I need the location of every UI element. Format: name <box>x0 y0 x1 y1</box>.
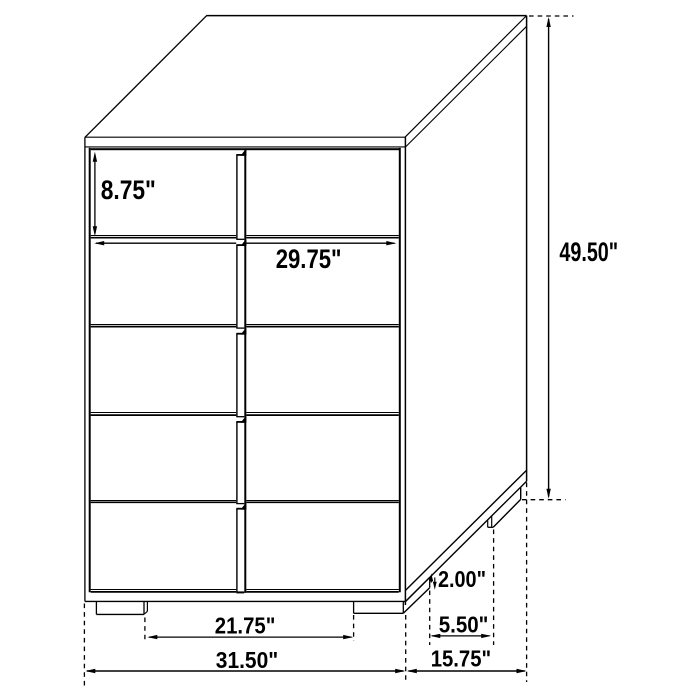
svg-text:29.75": 29.75" <box>276 245 342 274</box>
svg-text:15.75": 15.75" <box>431 645 491 672</box>
svg-text:49.50": 49.50" <box>559 237 618 266</box>
svg-text:5.50": 5.50" <box>439 612 489 638</box>
svg-text:8.75": 8.75" <box>101 177 156 206</box>
svg-text:2.00": 2.00" <box>438 567 486 593</box>
svg-text:31.50": 31.50" <box>216 647 278 673</box>
svg-text:21.75": 21.75" <box>215 612 276 638</box>
